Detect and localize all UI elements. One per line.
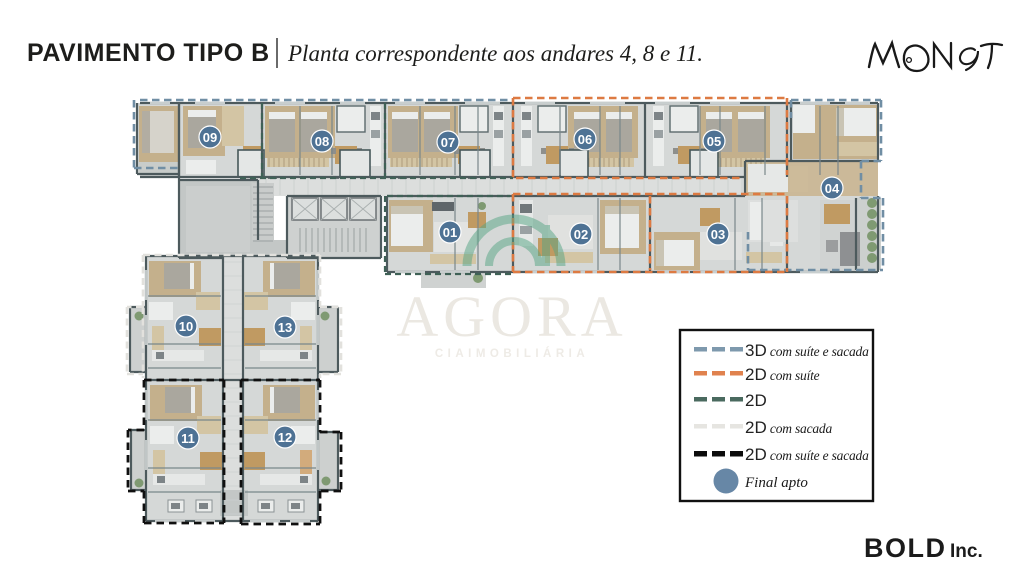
svg-text:01: 01 — [443, 225, 457, 240]
svg-text:Final apto: Final apto — [744, 475, 808, 491]
svg-text:13: 13 — [278, 320, 292, 335]
svg-text:06: 06 — [578, 132, 592, 147]
svg-text:BOLD: BOLD — [864, 533, 947, 563]
svg-text:2D com sacada: 2D com sacada — [745, 418, 832, 437]
svg-text:09: 09 — [203, 130, 217, 145]
svg-text:PAVIMENTO TIPO B: PAVIMENTO TIPO B — [27, 39, 270, 67]
svg-text:3D com suíte e sacada: 3D com suíte e sacada — [745, 341, 869, 360]
svg-text:05: 05 — [707, 134, 721, 149]
svg-text:2D com suíte: 2D com suíte — [745, 365, 820, 384]
svg-text:11: 11 — [181, 431, 195, 446]
svg-text:12: 12 — [278, 430, 292, 445]
svg-text:CIAIMOBILIÁRIA: CIAIMOBILIÁRIA — [435, 347, 589, 360]
svg-text:08: 08 — [315, 134, 329, 149]
svg-text:03: 03 — [711, 227, 725, 242]
svg-text:2D com suíte e sacada: 2D com suíte e sacada — [745, 445, 869, 464]
svg-text:2D: 2D — [745, 391, 767, 410]
svg-text:10: 10 — [179, 319, 193, 334]
svg-text:Planta correspondente aos anda: Planta correspondente aos andares 4, 8 e… — [287, 41, 703, 66]
svg-text:04: 04 — [825, 181, 840, 196]
svg-text:AGORA: AGORA — [396, 284, 627, 349]
svg-text:02: 02 — [574, 227, 588, 242]
svg-text:Inc.: Inc. — [950, 541, 983, 562]
svg-text:07: 07 — [441, 135, 455, 150]
